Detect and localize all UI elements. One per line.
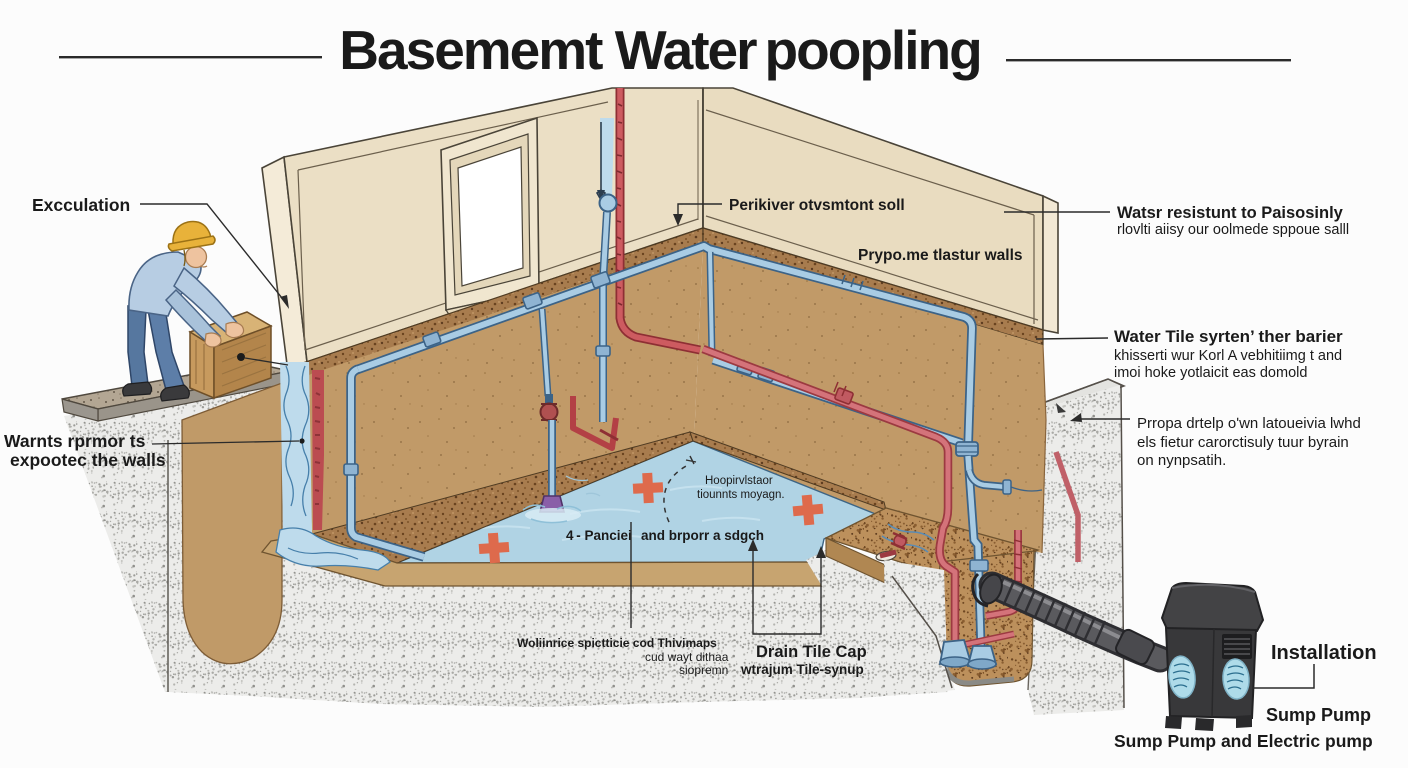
- svg-text:Excculation: Excculation: [32, 195, 130, 215]
- svg-text:Drain Tile Cap: Drain Tile Cap: [756, 643, 867, 661]
- svg-text:and brporr a sdgch: and brporr a sdgch: [641, 528, 764, 543]
- svg-text:tiounnts moyagn.: tiounnts moyagn.: [697, 489, 785, 501]
- svg-text:khisserti wur Korl A vebhitiim: khisserti wur Korl A vebhitiimg t and: [1114, 348, 1342, 364]
- svg-text:Woliinrice spictticie cod Thiv: Woliinrice spictticie cod Thivimaps: [517, 636, 717, 650]
- svg-text:els fietur carorctisuly tuur b: els fietur carorctisuly tuur byrain: [1137, 434, 1349, 451]
- svg-text:wtrajum Tile-synup: wtrajum Tile-synup: [740, 662, 864, 677]
- svg-text:Warnts rprmor ts: Warnts rprmor ts: [4, 431, 146, 451]
- svg-text:Watsr resistunt to Paisosinly: Watsr resistunt to Paisosinly: [1117, 204, 1344, 222]
- svg-text:Sump Pump: Sump Pump: [1266, 705, 1371, 725]
- svg-text:imoi hoke yotlaicit eas domold: imoi hoke yotlaicit eas domold: [1114, 365, 1307, 381]
- svg-text:cud wayt dithaa: cud wayt dithaa: [645, 650, 729, 664]
- svg-text:expootec the walls: expootec the walls: [10, 450, 166, 470]
- svg-text:Prropa drtelp oʹwn latoueivia: Prropa drtelp oʹwn latoueivia lwhd: [1137, 415, 1361, 432]
- svg-text:rlovlti aiisy our oolmede sppo: rlovlti aiisy our oolmede sppoue salll: [1117, 222, 1349, 238]
- svg-text:Basememt Water poopling: Basememt Water poopling: [339, 19, 980, 81]
- svg-text:Hoopirvlstaor: Hoopirvlstaor: [705, 475, 773, 487]
- svg-text:siopremn: siopremn: [679, 663, 728, 677]
- svg-text:Prypo.me tlastur walls: Prypo.me tlastur walls: [858, 247, 1023, 264]
- svg-text:Water Tile syrten’ ther barier: Water Tile syrten’ ther barier: [1114, 327, 1343, 346]
- svg-text:Installation: Installation: [1271, 642, 1377, 664]
- svg-text:Perikiver otvsmtont soll: Perikiver otvsmtont soll: [729, 197, 905, 214]
- svg-text:4 - Panciei: 4 - Panciei: [566, 528, 632, 543]
- svg-text:on nynpsatih.: on nynpsatih.: [1137, 452, 1226, 469]
- svg-text:Sump Pump and Electric pump: Sump Pump and Electric pump: [1114, 731, 1373, 751]
